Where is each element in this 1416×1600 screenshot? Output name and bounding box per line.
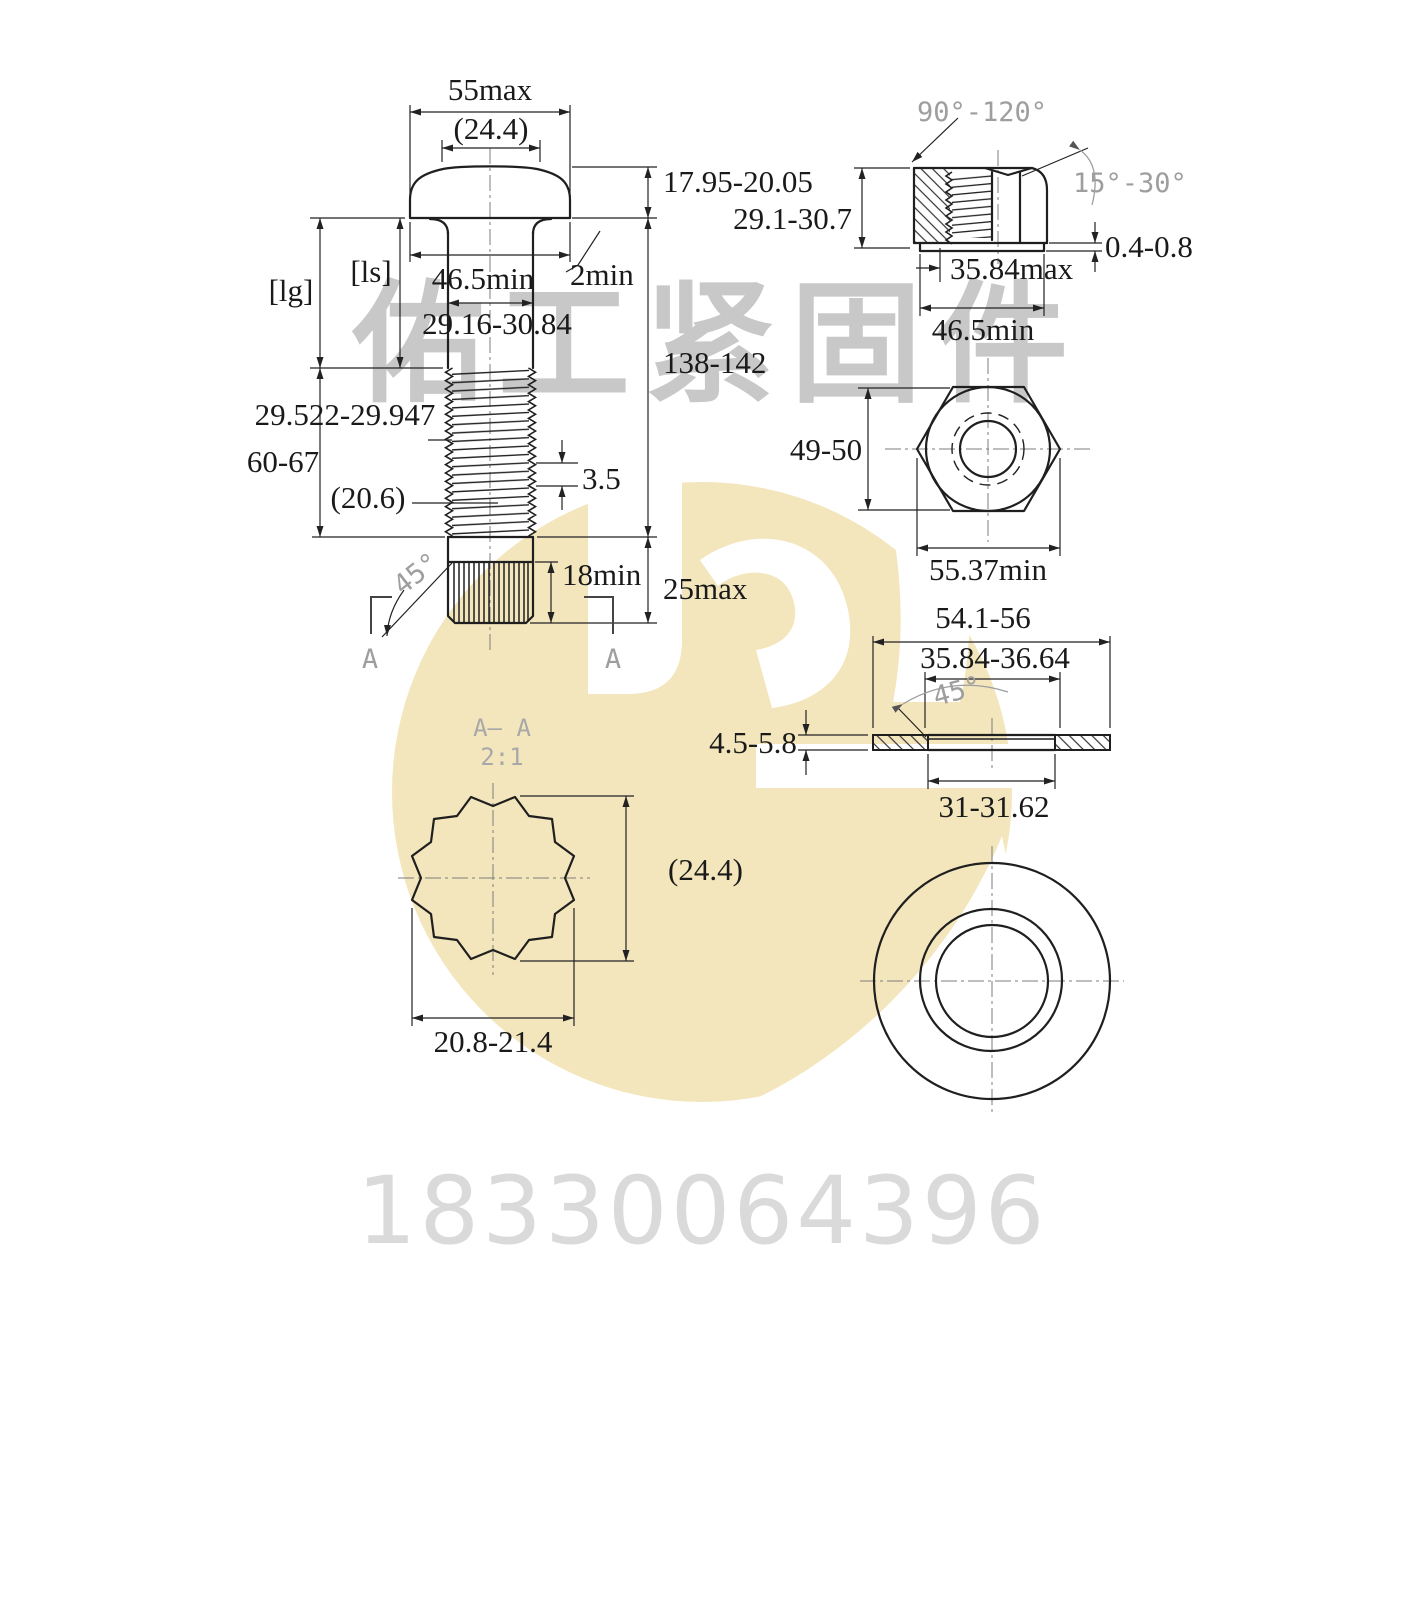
company-logo-watermark (392, 458, 1018, 1118)
fastener-drawing: 佑工紧固件 18330064396 (0, 0, 1416, 1600)
dim-thread-runout: (20.6) (331, 480, 406, 515)
dim-fillet: 2min (570, 257, 634, 292)
dim-cone-angle: 90°-120° (917, 97, 1047, 128)
dim-thread-pitch: 3.5 (582, 461, 621, 496)
dim-washer-id: 31-31.62 (938, 789, 1049, 824)
dim-nut-bore: 35.84max (950, 251, 1074, 286)
dim-across-flats: 49-50 (790, 432, 862, 467)
section-scale: 2:1 (480, 743, 523, 771)
dim-section-af: 20.8-21.4 (434, 1024, 553, 1059)
dim-total-length: 138-142 (663, 345, 766, 380)
dim-shank-dia: 29.16-30.84 (422, 306, 572, 341)
dim-thread-dia: 29.522-29.947 (255, 397, 436, 432)
dim-spline-dia-ref: (24.4) (454, 111, 529, 146)
dim-grip-label: [lg] (269, 273, 314, 308)
dim-nut-bearing: 46.5min (932, 312, 1035, 347)
dim-across-corners: 55.37min (929, 552, 1047, 587)
dim-bearing-dia: 46.5min (432, 261, 535, 296)
dim-head-height: 17.95-20.05 (663, 164, 813, 199)
dim-washer-face-height: 0.4-0.8 (1105, 229, 1193, 264)
dim-washer-chamfer-dia: 35.84-36.64 (920, 640, 1070, 675)
dim-nut-height: 29.1-30.7 (733, 201, 852, 236)
section-marker-left: A (362, 644, 378, 675)
dim-end-length: 25max (663, 571, 748, 606)
section-title: A— A (473, 714, 531, 742)
technical-drawing-canvas: 佑工紧固件 18330064396 (0, 0, 1416, 1600)
dim-nut-chamfer-angle: 15°-30° (1073, 168, 1187, 199)
dim-chamfer-angle: 45° (388, 547, 446, 601)
dim-head-width: 55max (448, 72, 533, 107)
dim-washer-thickness: 4.5-5.8 (709, 725, 797, 760)
phone-watermark: 18330064396 (357, 1157, 1048, 1266)
dim-section-od: (24.4) (668, 852, 743, 887)
dim-thread-length: 60-67 (247, 444, 319, 479)
dim-shank-label: [ls] (350, 254, 391, 289)
dim-spline-length: 18min (562, 557, 642, 592)
section-marker-right: A (605, 644, 621, 675)
dim-washer-od: 54.1-56 (935, 600, 1031, 635)
